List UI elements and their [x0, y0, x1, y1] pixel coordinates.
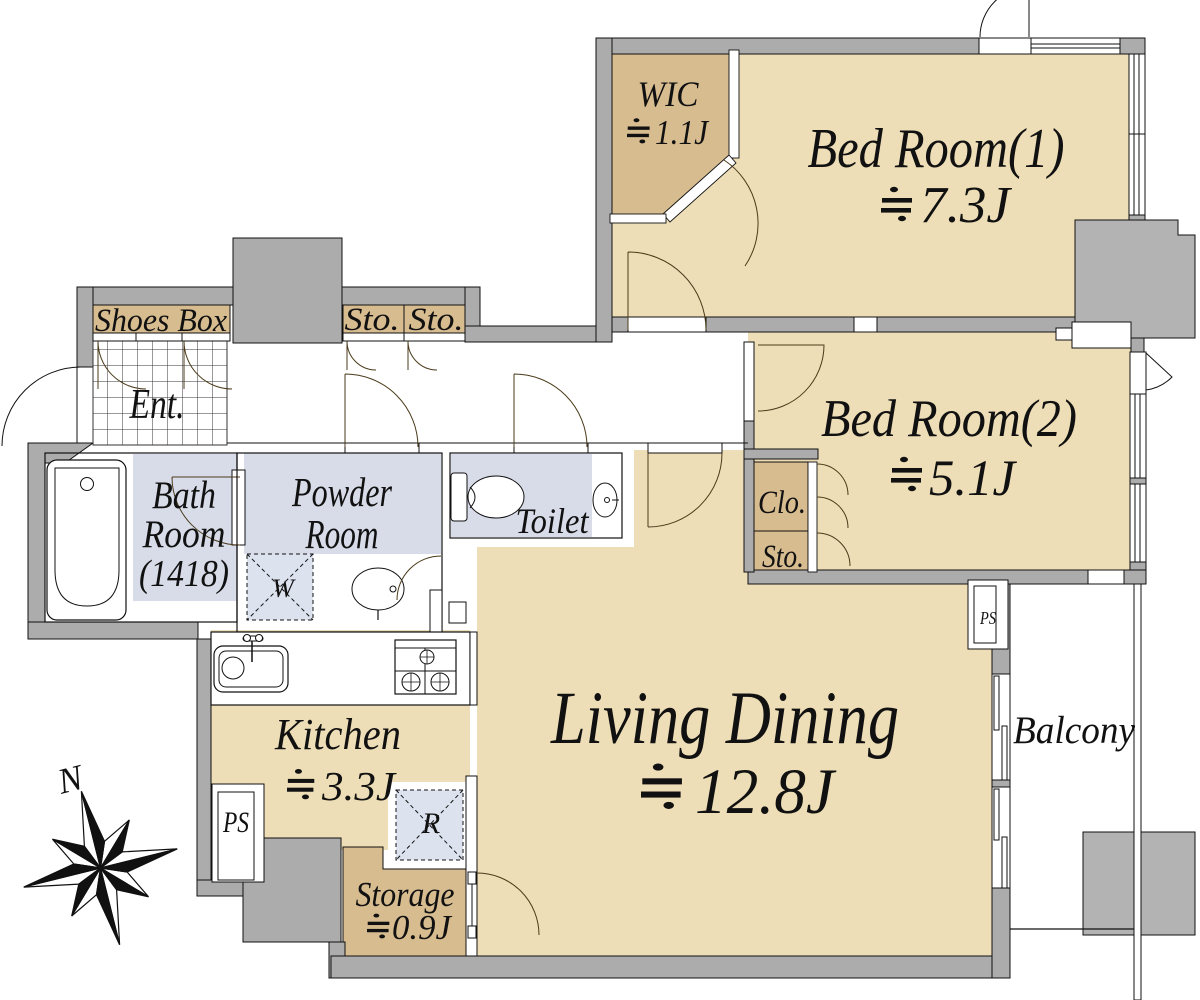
svg-text:Toilet: Toilet	[516, 501, 590, 541]
svg-text:PS: PS	[979, 608, 996, 628]
svg-text:Sto.: Sto.	[409, 302, 464, 338]
svg-text:12.8J: 12.8J	[695, 756, 837, 828]
svg-text:0.9J: 0.9J	[392, 908, 452, 947]
svg-text:PS: PS	[222, 806, 249, 839]
svg-text:Bed Room(2): Bed Room(2)	[821, 390, 1077, 448]
svg-text:Kitchen: Kitchen	[274, 710, 401, 759]
svg-text:WIC: WIC	[638, 74, 700, 114]
svg-text:Sto.: Sto.	[762, 539, 804, 575]
svg-text:Clo.: Clo.	[758, 485, 806, 521]
svg-text:W: W	[272, 574, 296, 603]
svg-text:Balcony: Balcony	[1013, 709, 1136, 752]
svg-text:1.1J: 1.1J	[655, 113, 709, 152]
svg-text:Powder: Powder	[291, 469, 393, 515]
svg-text:R: R	[421, 807, 440, 840]
svg-text:Sto.: Sto.	[345, 302, 400, 338]
svg-text:Bath: Bath	[152, 474, 216, 517]
svg-text:Room: Room	[142, 513, 226, 556]
svg-text:3.3J: 3.3J	[321, 763, 397, 809]
svg-text:Shoes Box: Shoes Box	[95, 303, 227, 339]
svg-text:5.1J: 5.1J	[929, 451, 1017, 507]
svg-text:(1418): (1418)	[139, 553, 229, 595]
svg-text:7.3J: 7.3J	[920, 177, 1013, 234]
svg-text:Ent.: Ent.	[129, 382, 185, 428]
svg-text:Room: Room	[305, 511, 379, 557]
svg-text:Living Dining: Living Dining	[550, 677, 899, 760]
svg-text:Bed Room(1): Bed Room(1)	[808, 118, 1065, 180]
